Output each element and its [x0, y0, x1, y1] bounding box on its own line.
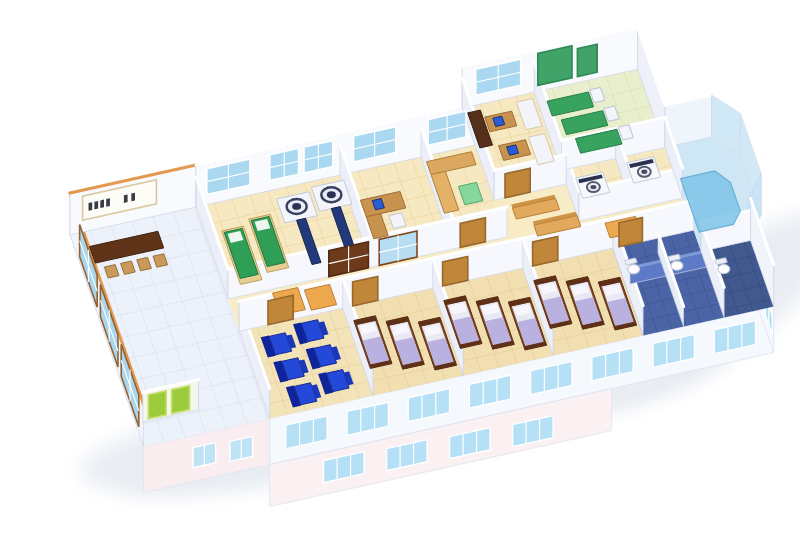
toilet	[671, 261, 683, 270]
ward-3-door	[533, 236, 558, 266]
ct-scanner-bore	[292, 203, 301, 210]
recliner-room-door	[268, 295, 293, 325]
reception-sign-glyph	[94, 201, 98, 210]
reception-sign-glyph	[131, 193, 135, 202]
reception-sign-glyph	[106, 198, 110, 207]
prep-door	[460, 218, 485, 248]
toilet	[628, 265, 640, 274]
scene-root	[70, 27, 800, 521]
elevator-door-2	[172, 386, 190, 414]
pt-wall-panel-2	[577, 44, 597, 76]
ct-scanner-bore	[327, 191, 336, 198]
pt-wall-panel-1	[538, 46, 572, 86]
sterilizer-door	[641, 170, 647, 174]
ward-1-door	[353, 276, 378, 306]
toilet	[718, 265, 730, 274]
sterilizer-door	[590, 185, 596, 189]
ward-2-door	[443, 256, 468, 286]
reception-sign-glyph	[100, 200, 104, 209]
reception-sign-glyph	[89, 202, 93, 211]
bathroom-door	[619, 218, 642, 247]
floorplan-svg	[0, 0, 800, 550]
reception-sign-glyph	[124, 194, 128, 203]
hospital-floorplan-render	[0, 0, 800, 550]
consult-door	[505, 168, 530, 198]
elevator-door-1	[148, 391, 166, 419]
